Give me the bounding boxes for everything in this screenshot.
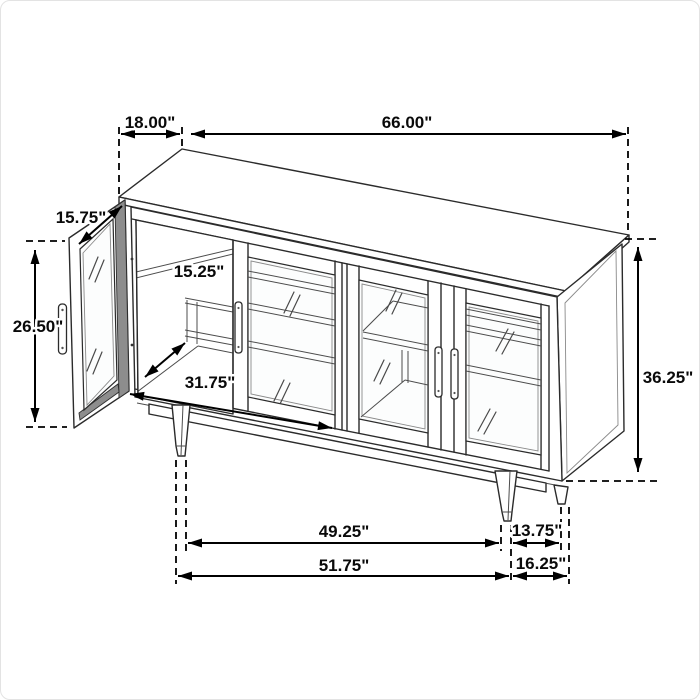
dimension-diagram-page: 18.00" 66.00" 15.75" 26.50" 15.25" 31.75… [0,0,700,700]
door-2 [235,257,335,415]
cabinet-drawing [59,149,630,521]
door-2-glass [248,257,335,415]
dim-leg-span-front-outer-label: 51.75" [319,556,370,575]
sideboard-dimension-drawing: 18.00" 66.00" 15.75" 26.50" 15.25" 31.75… [1,1,700,700]
front-right-leg [495,471,517,521]
door-4-handle [451,349,458,399]
open-door [59,200,134,428]
door-3-handle [435,347,442,397]
dim-door-width-label: 15.75" [56,208,107,227]
dim-interior-width-label: 31.75" [185,373,236,392]
hinge-dot-icon [131,344,134,347]
dim-overall-height-label: 36.25" [643,368,694,387]
dim-leg-span-side-outer-label: 16.25" [516,554,567,573]
dim-shelf-depth-label: 15.25" [174,262,225,281]
back-right-leg [554,485,568,504]
hinge-dot-icon [131,258,134,261]
dim-door-opening-height-label: 26.50" [13,317,64,336]
dim-leg-span-side-inner-label: 13.75" [512,521,563,540]
dim-leg-span-front-inner-label: 49.25" [319,522,370,541]
open-door-glass [80,219,117,410]
front-left-leg [172,405,190,456]
dim-overall-width-label: 66.00" [382,113,433,132]
door-2-handle [235,302,242,353]
dim-top-depth-label: 18.00" [125,113,176,132]
